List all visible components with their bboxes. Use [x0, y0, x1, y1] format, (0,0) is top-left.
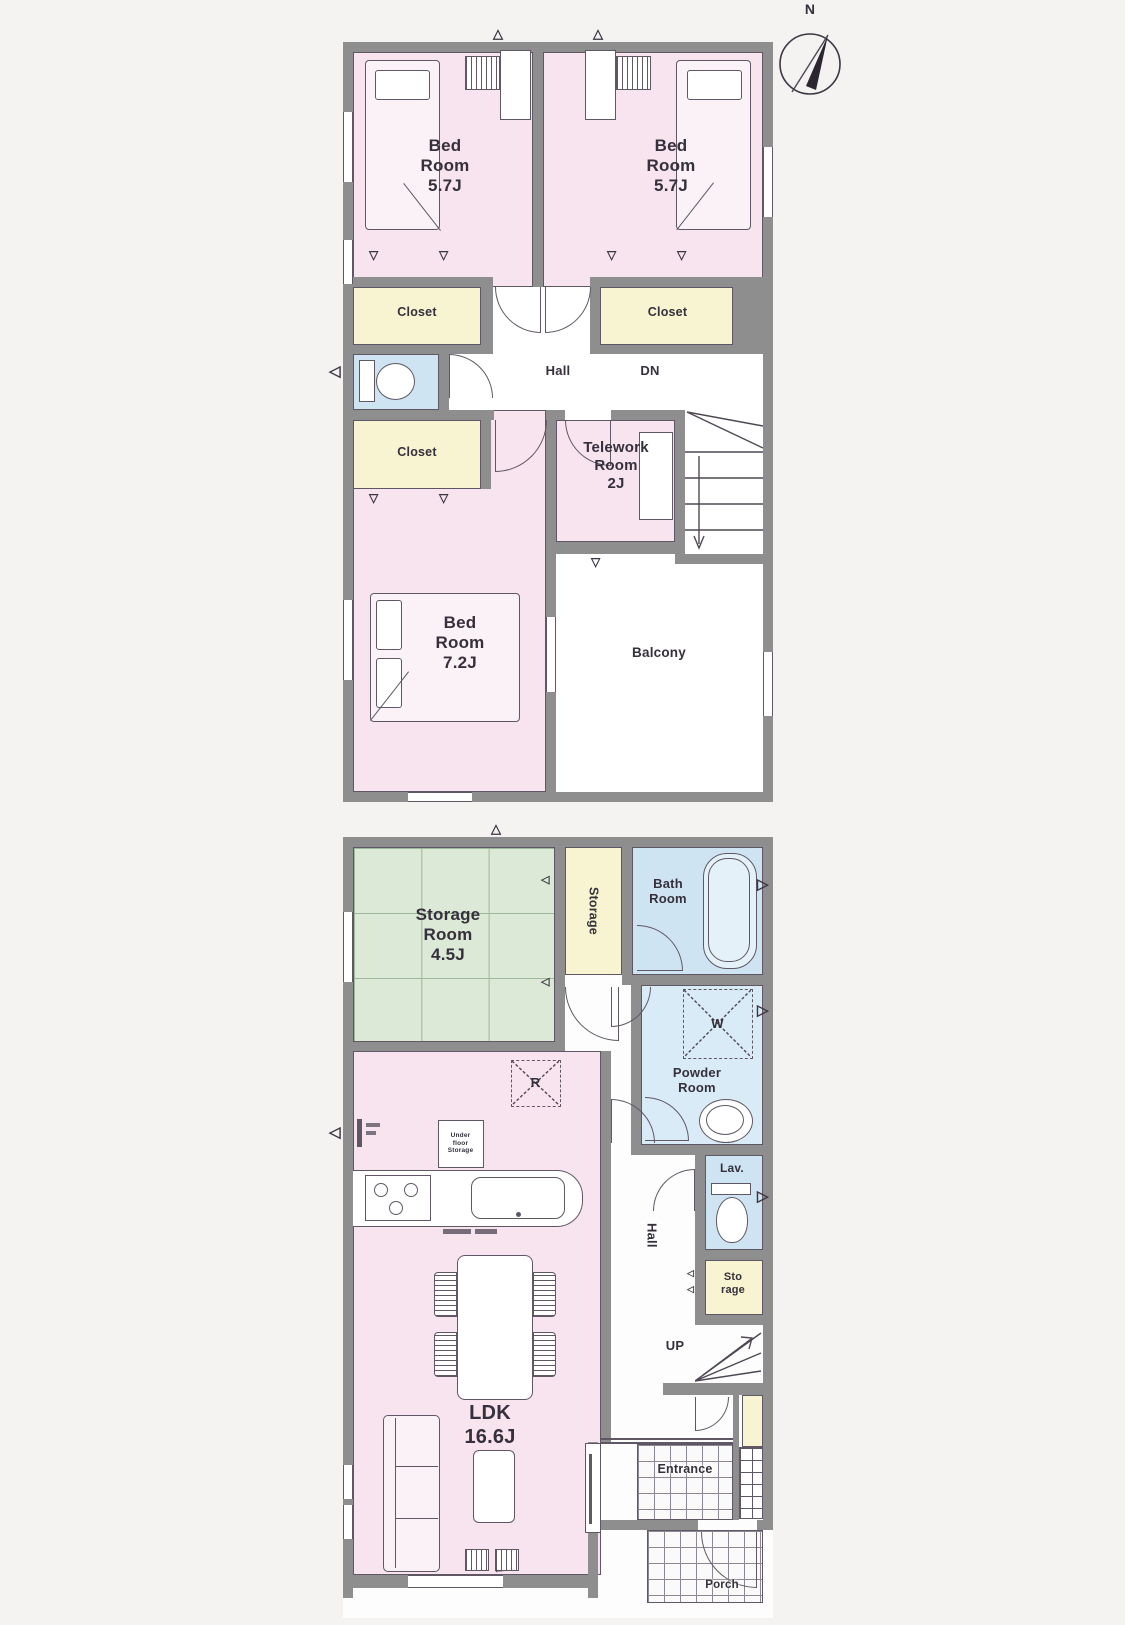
window	[343, 1505, 353, 1539]
closet-door-icon: ▽	[369, 492, 378, 504]
wall	[353, 345, 493, 354]
water-heater-icon	[366, 1131, 376, 1135]
wall	[439, 354, 449, 410]
closet-b-label: Closet	[605, 300, 730, 324]
storage-small-label: Sto rage	[707, 1267, 759, 1301]
toilet-bowl-icon	[376, 363, 415, 400]
chair-icon	[533, 1272, 556, 1317]
door-arc	[695, 1397, 729, 1431]
stairs-down-icon	[685, 410, 763, 554]
wall	[353, 277, 493, 287]
wall	[590, 345, 745, 354]
washbasin-inner	[706, 1105, 744, 1135]
vent-arrow-icon: △	[593, 27, 603, 40]
washbasin-icon	[699, 1099, 753, 1143]
washing-machine-label: W	[684, 990, 751, 1057]
folding-door-icon: ◁	[541, 875, 549, 886]
tv-screen	[589, 1454, 592, 1524]
kitchen-micro-label	[475, 1229, 497, 1234]
stove-icon	[365, 1175, 431, 1221]
desk-icon	[616, 56, 651, 90]
storage-room-label: Storage Room 4.5J	[373, 885, 523, 985]
stool-icon	[465, 1549, 489, 1571]
wall	[343, 42, 773, 52]
storage-upper-label: Storage	[579, 861, 607, 961]
burner	[389, 1201, 403, 1215]
refrigerator-icon: R	[511, 1060, 561, 1107]
sofa-back-line	[395, 1418, 396, 1568]
toilet-icon	[359, 360, 375, 402]
wall	[695, 1250, 763, 1260]
wall	[622, 975, 763, 985]
window	[763, 147, 773, 217]
wall	[546, 420, 556, 542]
wall	[622, 847, 632, 985]
wall	[481, 287, 493, 354]
wall	[353, 1042, 565, 1051]
closet-door-icon: ▽	[677, 249, 686, 261]
closet-door-icon: ▽	[369, 249, 378, 261]
folding-door-icon: ◁	[687, 1285, 694, 1294]
closet-door-icon: ▽	[607, 249, 616, 261]
entrance-label: Entrance	[641, 1459, 729, 1479]
sliding-window	[546, 617, 556, 692]
wall	[757, 1520, 763, 1530]
wall	[481, 410, 491, 489]
lavatory-label: Lav.	[707, 1157, 757, 1179]
under-floor-storage: Under floor Storage	[438, 1120, 484, 1168]
bath-room-label: Bath Room	[637, 867, 699, 915]
desk-icon	[465, 56, 500, 90]
window	[763, 652, 773, 716]
telework-room-label: Telework Room 2J	[561, 430, 671, 502]
exhaust-arrow-icon: ◁	[329, 1125, 341, 1140]
door-arc	[545, 287, 591, 333]
ldk-label: LDK 16.6J	[410, 1393, 570, 1459]
window	[343, 112, 353, 182]
burner	[374, 1183, 388, 1197]
bathtub-inner	[708, 858, 750, 962]
window	[408, 792, 472, 802]
floor1-plan: R Under floor Storage W	[343, 837, 773, 1618]
exhaust-arrow-icon: ▷	[757, 877, 769, 892]
compass-icon	[762, 14, 858, 110]
powder-room-label: Powder Room	[645, 1061, 749, 1099]
landing-bar	[663, 1383, 763, 1395]
wall	[675, 410, 685, 554]
wall	[590, 287, 600, 354]
entrance-floor	[637, 1444, 733, 1520]
sofa-cushion-line	[395, 1466, 438, 1467]
pillow	[375, 70, 430, 100]
chair-icon	[434, 1272, 457, 1317]
toilet-icon	[711, 1183, 751, 1195]
wall	[695, 1155, 705, 1260]
folding-door-icon: ◁	[687, 1269, 694, 1278]
wall	[353, 410, 494, 420]
shoe-counter	[742, 1395, 763, 1447]
step-edge	[601, 1438, 733, 1440]
vent-arrow-icon: △	[493, 27, 503, 40]
bedroom-c-label: Bed Room 7.2J	[395, 598, 525, 688]
chair-icon	[533, 1332, 556, 1377]
compass: N	[762, 0, 858, 110]
sofa-cushion-line	[395, 1518, 438, 1519]
bathtub-icon	[703, 853, 757, 969]
wall	[611, 410, 675, 420]
faucet	[516, 1212, 521, 1217]
closet-door-icon: ▽	[439, 492, 448, 504]
window	[343, 1465, 353, 1499]
water-heater-icon	[357, 1119, 362, 1147]
wall	[675, 554, 763, 564]
porch-label: Porch	[687, 1577, 757, 1595]
wall	[601, 1051, 611, 1442]
exhaust-arrow-icon: ▷	[757, 1189, 769, 1204]
floorplan-page: { "colors":{"room_pink":"#f7e4ee","close…	[0, 0, 1125, 1625]
water-heater-icon	[366, 1123, 380, 1127]
dining-table-icon	[457, 1255, 533, 1400]
wardrobe-icon	[585, 50, 616, 120]
wall	[733, 287, 763, 354]
stairs-up-icon	[695, 1325, 763, 1383]
refrigerator-label: R	[512, 1061, 559, 1105]
wall	[588, 1520, 698, 1530]
pillow	[687, 70, 742, 100]
door-arc	[449, 354, 493, 398]
folding-door-icon: ◁	[541, 977, 549, 988]
sink-icon	[471, 1177, 565, 1219]
wall	[695, 1315, 763, 1325]
under-floor-storage-label: Under floor Storage	[439, 1121, 482, 1166]
wall	[343, 837, 773, 847]
vent-arrow-icon: ▽	[591, 556, 600, 568]
balcony-label: Balcony	[599, 640, 719, 666]
exhaust-arrow-icon: ▷	[757, 1003, 769, 1018]
toilet-bowl-icon	[716, 1197, 748, 1243]
wall	[546, 542, 685, 554]
tv-icon	[585, 1443, 601, 1533]
wardrobe-icon	[500, 50, 531, 120]
shoe-cabinet	[739, 1447, 763, 1519]
exhaust-arrow-icon: ◁	[329, 364, 341, 379]
wall	[631, 1145, 763, 1155]
up-label: UP	[657, 1335, 693, 1357]
slide-arrow-icon: ←	[493, 1563, 505, 1575]
closet-a-label: Closet	[357, 300, 477, 324]
window	[343, 600, 353, 680]
down-label: DN	[625, 358, 675, 384]
hall-label: Hall	[639, 1205, 665, 1265]
wall	[555, 847, 565, 1051]
window	[343, 240, 353, 284]
bedroom-b-label: Bed Room 5.7J	[611, 128, 731, 204]
window	[408, 1575, 503, 1588]
kitchen-micro-label	[443, 1229, 471, 1234]
washing-machine-icon: W	[683, 989, 753, 1059]
vent-arrow-icon: △	[491, 822, 501, 835]
bedroom-a-label: Bed Room 5.7J	[385, 128, 505, 204]
burner	[404, 1183, 418, 1197]
closet-door-icon: ▽	[439, 249, 448, 261]
wall	[546, 410, 565, 420]
hall-label: Hall	[523, 358, 593, 384]
door-arc	[495, 287, 541, 333]
window	[343, 912, 353, 982]
floor2-plan: △ △ ▽ ▽ ▽ ▽ ▽ ▽ ▽ ◁ Bed Room 5.7J Bed Ro…	[343, 42, 773, 802]
wall	[763, 837, 773, 1530]
closet-c-label: Closet	[357, 440, 477, 464]
chair-icon	[434, 1332, 457, 1377]
coffee-table-icon	[473, 1450, 515, 1523]
wall	[590, 277, 763, 287]
wall	[533, 52, 543, 287]
